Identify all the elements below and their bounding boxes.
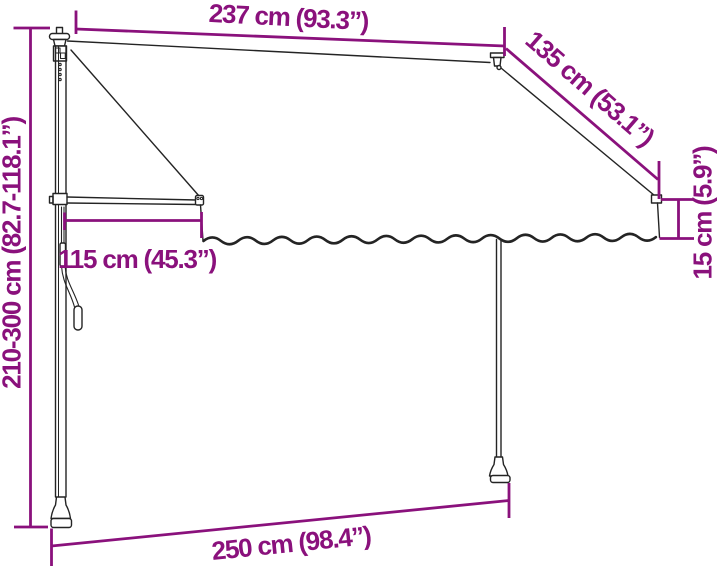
adjustment-hole [59, 73, 61, 75]
roller-right-bracket-body [494, 58, 502, 67]
roller-right-bracket [491, 53, 505, 70]
rear-pole-cap-disc [50, 34, 70, 40]
arm-clamp [53, 194, 67, 205]
front-pole-foot-trumpet [490, 457, 509, 476]
support-arm [50, 194, 204, 206]
front-bar-valance [201, 195, 662, 244]
crank-grip [74, 306, 82, 330]
arm-end-joint [196, 196, 204, 206]
arm-tube-bottom [67, 203, 197, 205]
label-valance-height: 15 cm (5.9”) [688, 146, 718, 280]
arm-tube-top [67, 197, 197, 200]
dim-arm-projection [65, 212, 202, 238]
label-side-slant: 135 cm (53.1”) [520, 25, 660, 153]
rear-pole [50, 28, 72, 528]
adjustment-hole [59, 68, 61, 70]
label-top-width: 237 cm (93.3”) [208, 0, 369, 36]
label-pole-height: 210-300 cm (82.7-118.1”) [0, 117, 27, 389]
valance-right-edge [658, 203, 660, 238]
label-arm-projection: 115 cm (45.3”) [58, 244, 217, 274]
adjustment-hole [59, 63, 61, 65]
adjustment-hole [59, 78, 61, 80]
rear-pole-cap-neck [54, 40, 67, 47]
valance-wavy-edge [204, 234, 656, 244]
arm-clamp-bolt [50, 197, 54, 204]
front-pole-foot-base [491, 476, 511, 483]
front-pole [490, 240, 511, 483]
rear-pole-foot-base [51, 519, 72, 528]
diagram-canvas: 237 cm (93.3”) 135 cm (53.1”) 15 cm (5.9… [0, 0, 720, 567]
rear-pole-foot-trumpet [51, 497, 71, 519]
roller-right-bracket-pin [497, 66, 501, 70]
fabric-left-edge [71, 50, 200, 197]
awning-dimension-diagram: 237 cm (93.3”) 135 cm (53.1”) 15 cm (5.9… [0, 0, 720, 567]
dimension-labels: 237 cm (93.3”) 135 cm (53.1”) 15 cm (5.9… [0, 0, 718, 566]
